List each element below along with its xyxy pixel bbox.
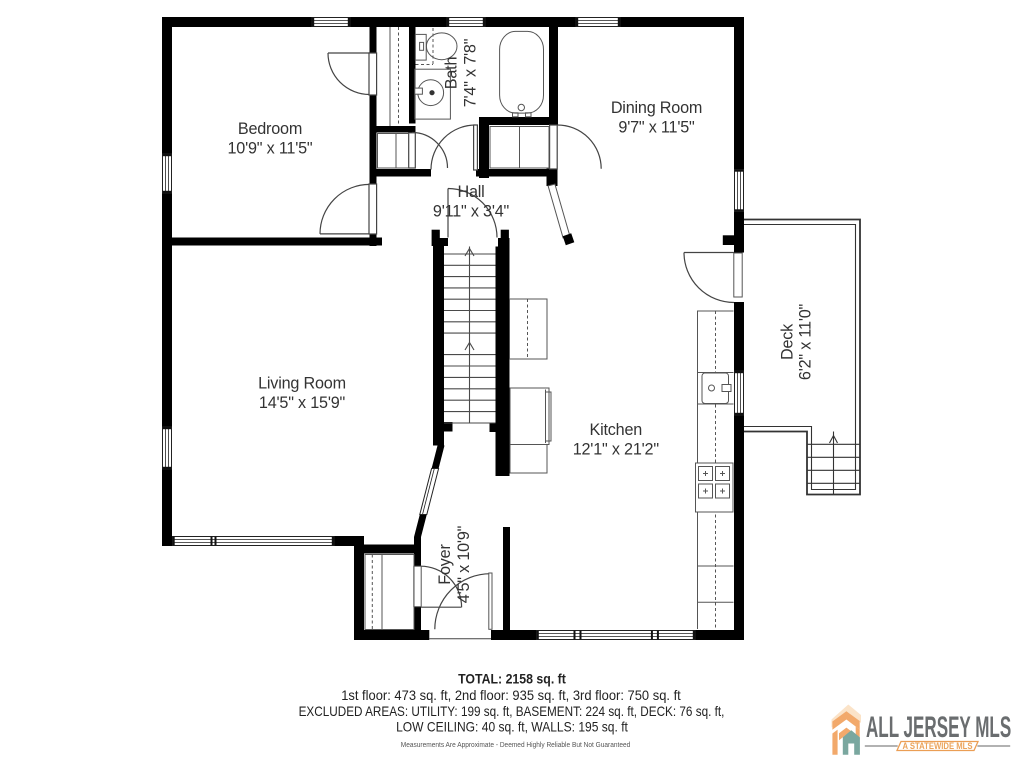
- svg-text:6'2" x 11'0": 6'2" x 11'0": [796, 303, 814, 380]
- svg-text:14'5" x 15'9": 14'5" x 15'9": [259, 394, 346, 412]
- svg-text:4'5" x 10'9": 4'5" x 10'9": [455, 525, 473, 603]
- svg-text:12'1" x 21'2": 12'1" x 21'2": [573, 441, 660, 459]
- svg-text:10'9" x 11'5": 10'9" x 11'5": [228, 140, 313, 158]
- svg-text:A STATEWIDE MLS: A STATEWIDE MLS: [903, 741, 973, 752]
- svg-text:Bedroom: Bedroom: [238, 120, 302, 138]
- svg-text:ALL JERSEY MLS: ALL JERSEY MLS: [866, 711, 1011, 744]
- svg-text:Kitchen: Kitchen: [590, 421, 643, 439]
- svg-text:EXCLUDED AREAS: UTILITY: 199 s: EXCLUDED AREAS: UTILITY: 199 sq. ft, BAS…: [299, 704, 725, 719]
- svg-text:Foyer: Foyer: [436, 544, 454, 585]
- svg-text:9'11" x 3'4": 9'11" x 3'4": [433, 202, 510, 220]
- svg-text:Dining Room: Dining Room: [611, 99, 702, 117]
- svg-text:TOTAL: 2158 sq. ft: TOTAL: 2158 sq. ft: [458, 672, 566, 687]
- svg-text:Deck: Deck: [779, 323, 797, 360]
- svg-text:9'7" x 11'5": 9'7" x 11'5": [618, 118, 695, 136]
- svg-text:Hall: Hall: [457, 183, 484, 201]
- svg-text:Bath: Bath: [443, 57, 461, 90]
- svg-text:7'4" x 7'8": 7'4" x 7'8": [462, 38, 480, 107]
- svg-text:Measurements Are Approximate -: Measurements Are Approximate - Deemed Hi…: [401, 742, 631, 749]
- svg-text:1st floor: 473 sq. ft, 2nd flo: 1st floor: 473 sq. ft, 2nd floor: 935 sq…: [341, 688, 681, 703]
- svg-text:LOW CEILING: 40 sq. ft, WALLS:: LOW CEILING: 40 sq. ft, WALLS: 195 sq. f…: [396, 720, 628, 735]
- svg-text:Living Room: Living Room: [258, 375, 346, 393]
